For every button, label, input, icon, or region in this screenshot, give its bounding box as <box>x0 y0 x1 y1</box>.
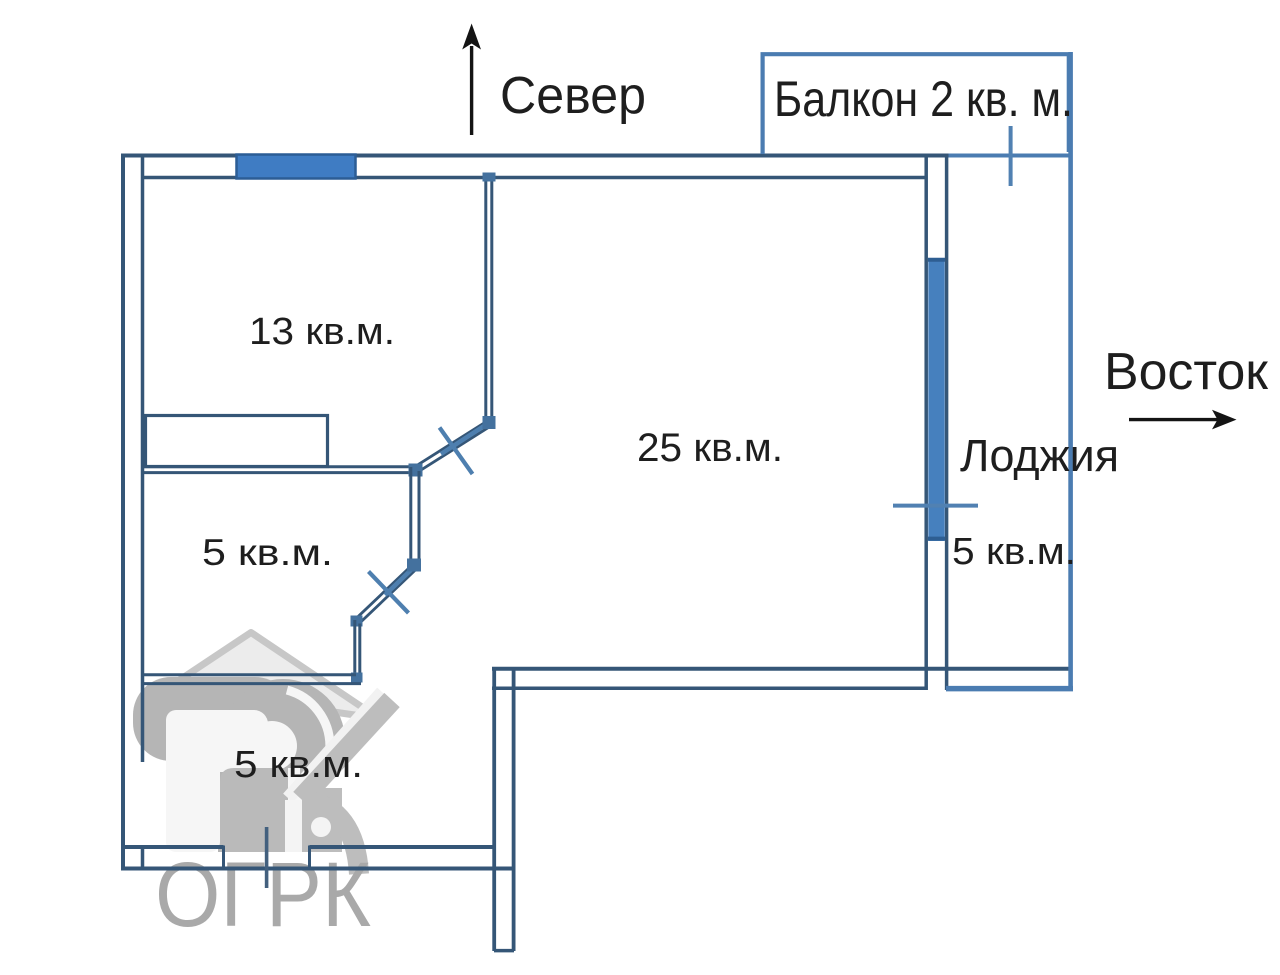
svg-text:Балкон 2 кв. м.: Балкон 2 кв. м. <box>774 71 1073 127</box>
svg-text:Север: Север <box>500 67 646 125</box>
svg-text:ОГРК: ОГРК <box>155 844 371 946</box>
svg-text:Лоджия: Лоджия <box>960 430 1119 481</box>
svg-text:5 кв.м.: 5 кв.м. <box>234 744 363 786</box>
svg-text:Восток: Восток <box>1104 343 1268 401</box>
svg-text:5 кв.м.: 5 кв.м. <box>202 532 333 573</box>
svg-text:25 кв.м.: 25 кв.м. <box>637 426 783 470</box>
svg-text:5 кв.м.: 5 кв.м. <box>952 531 1076 573</box>
svg-text:13 кв.м.: 13 кв.м. <box>249 311 395 353</box>
